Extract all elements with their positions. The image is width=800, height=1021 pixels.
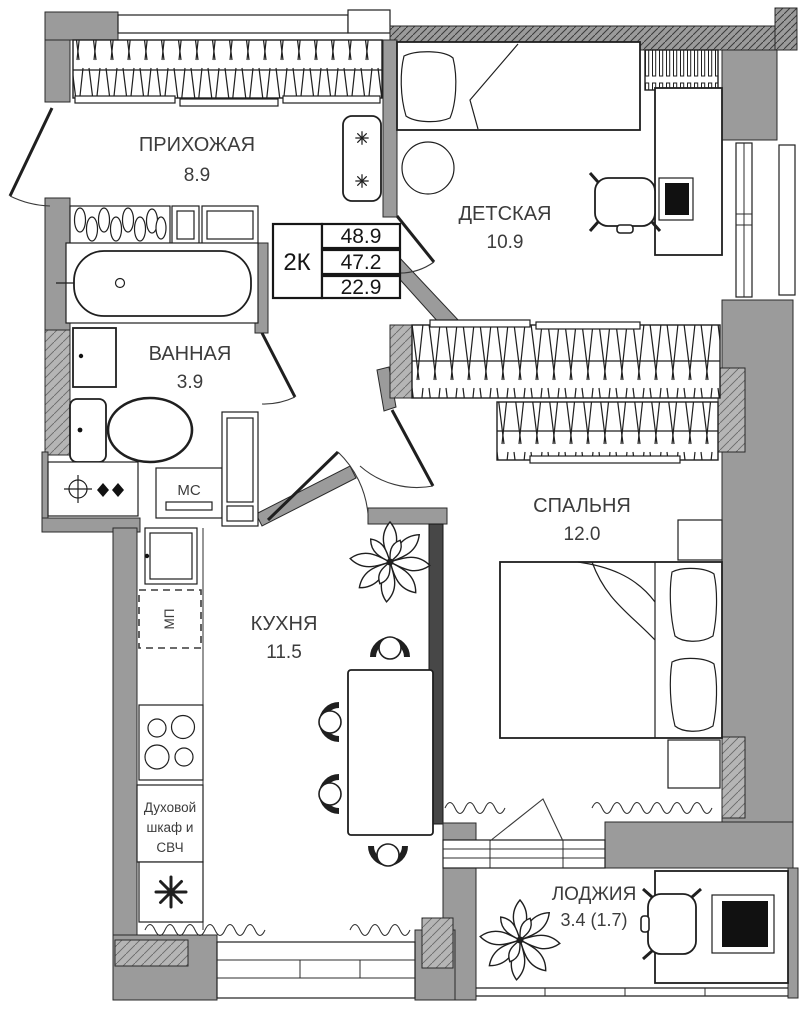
double-bed [500,562,722,738]
plant-icon [350,522,431,602]
loggia-chair [641,889,701,959]
kids-desk [655,88,722,255]
book-shelf [645,50,718,90]
sink-icon [156,877,186,907]
dining-table-set [319,637,433,866]
room-area-kitchen: 11.5 [266,642,302,663]
monitor-icon [712,895,774,953]
hall-cabinets [172,206,258,244]
radiator [445,803,505,814]
microwave-place-label: МП [162,609,177,630]
room-label-hallway: ПРИХОЖАЯ [139,134,255,156]
tall-cabinet [222,412,258,526]
bathroom: МС ВАННАЯ 3.9 [48,243,258,526]
bath-door [262,333,295,404]
nightstand [678,520,722,560]
kids-chair [590,173,660,233]
kids-bed [397,42,640,130]
wall-cabinet [73,328,116,387]
area-reduced: 22.9 [341,276,382,299]
pouf [402,142,454,194]
chair [371,844,405,866]
floorplan-page: ПРИХОЖАЯ 8.9 2К 48.9 47.2 22.9 [0,0,800,1021]
room-area-kids: 10.9 [487,232,524,253]
toilet [70,398,192,462]
room-area-loggia: 3.4 (1.7) [560,910,627,930]
hook-icon [356,175,368,187]
info-table: 2К 48.9 47.2 22.9 [273,224,400,299]
chair [319,705,341,739]
room-label-kids: ДЕТСКАЯ [459,203,552,225]
monitor-icon [659,178,693,220]
bedroom: СПАЛЬНЯ 12.0 [445,402,722,814]
fridge [145,528,197,584]
washing-machine-label: МС [177,482,200,499]
oven-label-1: Духовой [144,800,196,815]
room-label-bath: ВАННАЯ [149,343,232,365]
oven-cabinet: Духовой шкаф и СВЧ [137,785,203,862]
kids-room: ДЕТСКАЯ 10.9 [397,42,722,398]
utility-niche [48,462,138,516]
room-label-kitchen: КУХНЯ [251,613,318,635]
area-living: 47.2 [341,251,382,274]
bedroom-wardrobe [497,402,718,463]
room-area-bedroom: 12.0 [564,524,601,545]
loggia-glazing [476,988,788,996]
loggia: ЛОДЖИЯ 3.4 (1.7) [480,871,788,983]
hook-icon [356,132,368,144]
washing-machine: МС [156,468,222,518]
plant-icon [480,900,561,980]
area-total: 48.9 [341,225,382,248]
entrance-door [10,108,52,206]
room-label-bedroom: СПАЛЬНЯ [533,495,631,517]
nightstand [668,740,720,788]
stove [139,705,203,780]
floorplan-svg: ПРИХОЖАЯ 8.9 2К 48.9 47.2 22.9 [0,0,800,1021]
room-label-loggia: ЛОДЖИЯ [552,884,637,905]
bedroom-door [360,410,433,488]
chair [373,637,407,659]
oven-label-2: шкаф и [147,820,194,835]
chair [319,777,341,811]
kitchen-window [217,942,415,998]
radiator [145,925,265,936]
kitchen-sink [139,862,203,922]
room-area-hallway: 8.9 [184,165,210,186]
room-area-bath: 3.9 [177,372,203,393]
shoe-rack [70,206,170,244]
coat-rack [343,116,381,201]
dining-table [348,670,433,835]
microwave-place: МП [139,590,201,648]
hall-wardrobe [73,40,382,106]
oven-label-3: СВЧ [156,840,183,855]
kitchen: МП Духовой шкаф и СВЧ КУХНЯ [137,522,433,936]
bathtub [56,243,258,323]
apartment-type: 2К [283,249,310,276]
radiator [350,925,410,936]
kids-wardrobe [412,320,720,398]
kids-window [736,143,795,297]
hallway: ПРИХОЖАЯ 8.9 [70,40,382,244]
radiator [592,803,712,814]
